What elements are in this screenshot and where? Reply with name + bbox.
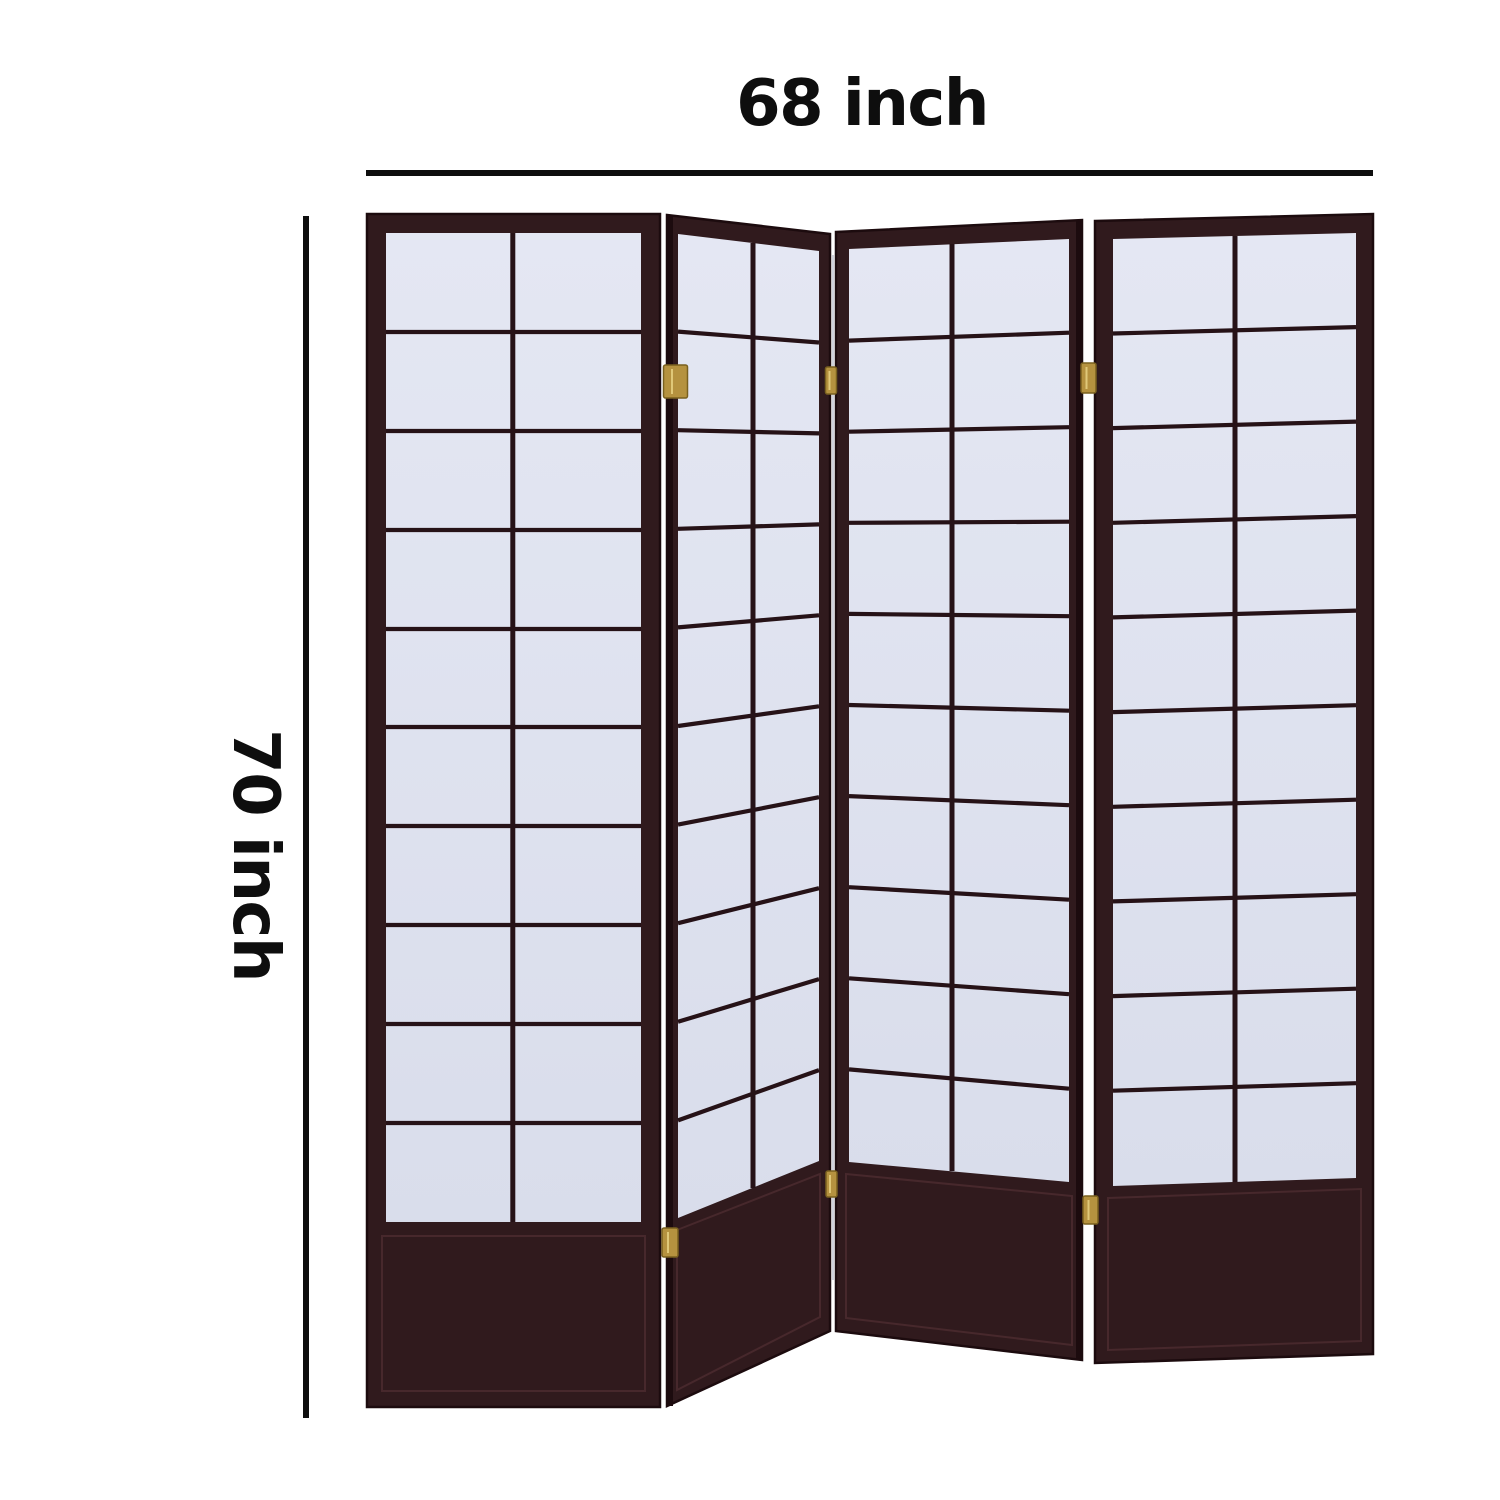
- hinge-icon: [826, 1171, 837, 1197]
- product-dimension-diagram: 68 inch 70 inch: [0, 0, 1500, 1500]
- hinge-icon: [826, 367, 837, 394]
- hinge-icon: [1083, 1196, 1098, 1224]
- hinge-icon: [1081, 363, 1096, 393]
- panel-1: [367, 214, 660, 1407]
- hinge-icon: [662, 1228, 678, 1257]
- panel-2: [667, 215, 830, 1406]
- room-divider-illustration: [0, 0, 1500, 1500]
- hinge-icon: [664, 365, 688, 398]
- panel-2-paper: [678, 234, 819, 1218]
- panel-3: [836, 220, 1082, 1360]
- panel-4: [1095, 214, 1373, 1363]
